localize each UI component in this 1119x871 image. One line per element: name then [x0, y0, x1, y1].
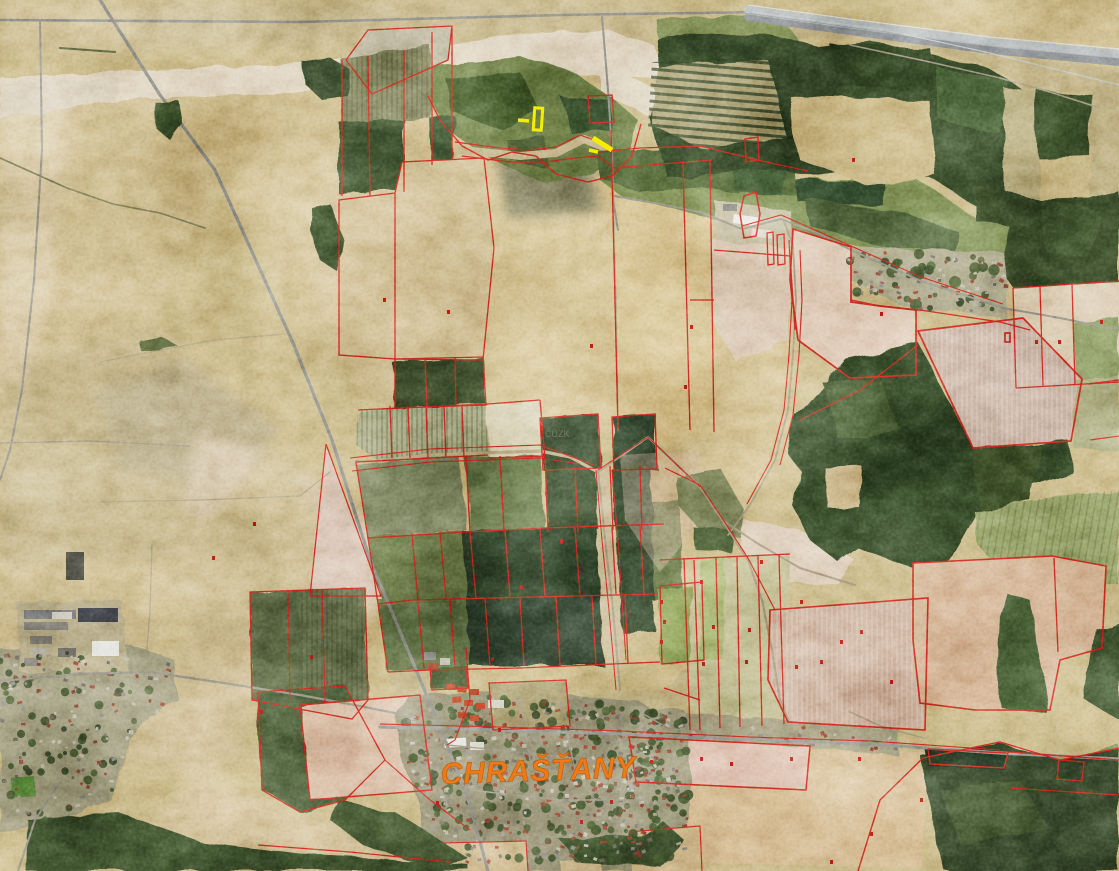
svg-text:CHRAŠŤANY: CHRAŠŤANY: [440, 750, 639, 791]
svg-text:ČÚZK: ČÚZK: [545, 429, 570, 439]
